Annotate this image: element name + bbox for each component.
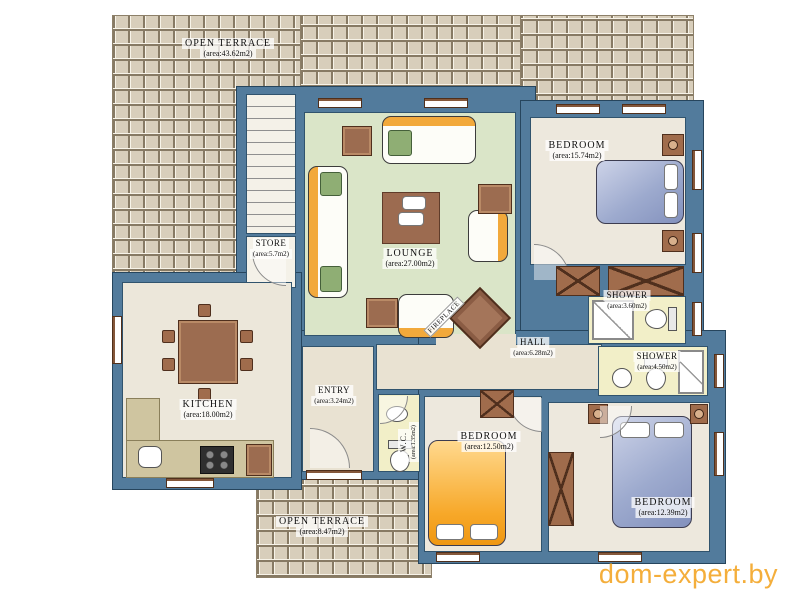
room-name: STORE bbox=[253, 238, 290, 249]
room-name: SHOWER bbox=[634, 351, 681, 362]
room-area: (area:3.60m2) bbox=[604, 301, 649, 311]
window-icon bbox=[556, 104, 600, 114]
room-area: (area:8.47m2) bbox=[296, 527, 347, 537]
nightstand bbox=[662, 134, 684, 156]
room-name: HALL bbox=[517, 337, 549, 348]
side-table bbox=[478, 184, 512, 214]
dining-table bbox=[178, 320, 238, 384]
cushion bbox=[388, 130, 412, 156]
window-icon bbox=[318, 98, 362, 108]
room-label-bedroom-right: BEDROOM (area:12.39m2) bbox=[631, 497, 694, 518]
room-area: (area:4.50m2) bbox=[634, 362, 679, 372]
watermark: dom-expert.by bbox=[599, 559, 778, 590]
side-table bbox=[366, 298, 398, 328]
chair bbox=[198, 304, 211, 317]
room-label-store: STORE (area:5.7m2) bbox=[250, 238, 292, 259]
room-label-shower-right: SHOWER (area:4.50m2) bbox=[634, 351, 681, 372]
room-name: BEDROOM bbox=[545, 140, 608, 151]
room-name: KITCHEN bbox=[180, 399, 237, 410]
window-icon bbox=[714, 354, 724, 388]
bed-pillow bbox=[436, 524, 464, 540]
room-area: (area:18.00m2) bbox=[180, 410, 235, 420]
chair bbox=[162, 330, 175, 343]
nightstand bbox=[690, 404, 708, 424]
entry-door bbox=[306, 470, 362, 480]
room-label-kitchen: KITCHEN (area:18.00m2) bbox=[180, 399, 237, 420]
window-icon bbox=[436, 552, 480, 562]
open-terrace-top-right bbox=[520, 15, 694, 112]
cushion bbox=[320, 172, 342, 196]
chair bbox=[240, 358, 253, 371]
room-area: (area:6.28m2) bbox=[510, 348, 555, 358]
window-icon bbox=[424, 98, 468, 108]
room-label-lounge: LOUNGE (area:27.00m2) bbox=[382, 248, 437, 269]
room-name: LOUNGE bbox=[383, 248, 436, 259]
room-area: (area:1.35m2) bbox=[409, 422, 419, 462]
room-name: OPEN TERRACE bbox=[182, 38, 274, 49]
room-label-entry: ENTRY (area:3.24m2) bbox=[311, 385, 356, 406]
chair bbox=[162, 358, 175, 371]
window-icon bbox=[692, 233, 702, 273]
room-label-bedroom-mid: BEDROOM (area:12.50m2) bbox=[457, 431, 520, 452]
room-area: (area:5.7m2) bbox=[250, 249, 292, 259]
room-area: (area:3.24m2) bbox=[311, 396, 356, 406]
nightstand bbox=[662, 230, 684, 252]
cushion bbox=[320, 266, 342, 292]
staircase bbox=[246, 94, 296, 234]
room-label-bedroom-top: BEDROOM (area:15.74m2) bbox=[545, 140, 608, 161]
window-icon bbox=[692, 302, 702, 336]
window-icon bbox=[692, 150, 702, 190]
kitchen-sink-icon bbox=[138, 446, 162, 468]
room-area: (area:15.74m2) bbox=[549, 151, 604, 161]
side-table bbox=[342, 126, 372, 156]
room-area: (area:12.50m2) bbox=[461, 442, 516, 452]
room-name: W.C. bbox=[398, 429, 409, 455]
room-name: BEDROOM bbox=[457, 431, 520, 442]
window-icon bbox=[166, 478, 214, 488]
toilet-tank bbox=[668, 307, 677, 331]
kitchen-cabinet bbox=[246, 444, 272, 476]
room-area: (area:12.39m2) bbox=[635, 508, 690, 518]
room-name: BEDROOM bbox=[631, 497, 694, 508]
rug-pillow bbox=[398, 212, 424, 226]
toilet-bowl bbox=[645, 309, 667, 329]
bed-pillow bbox=[654, 422, 684, 438]
room-name: ENTRY bbox=[315, 385, 353, 396]
window-icon bbox=[112, 316, 122, 364]
room-area: (area:27.00m2) bbox=[382, 259, 437, 269]
hall-floor bbox=[376, 344, 602, 390]
wardrobe bbox=[548, 452, 574, 526]
armchair-right bbox=[468, 210, 508, 262]
closet bbox=[480, 390, 514, 418]
window-icon bbox=[714, 432, 724, 476]
bed-pillow bbox=[470, 524, 498, 540]
room-name: SHOWER bbox=[604, 290, 651, 301]
room-label-open-terrace-top: OPEN TERRACE (area:43.62m2) bbox=[182, 38, 274, 59]
room-label-hall: HALL (area:6.28m2) bbox=[510, 337, 555, 358]
bed-pillow bbox=[664, 192, 678, 218]
room-name: OPEN TERRACE bbox=[276, 516, 368, 527]
room-label-open-terrace-bottom: OPEN TERRACE (area:8.47m2) bbox=[276, 516, 368, 537]
room-area: (area:43.62m2) bbox=[200, 49, 255, 59]
bed-pillow bbox=[664, 164, 678, 190]
floor-plan: OPEN TERRACE (area:43.62m2) STORE (area:… bbox=[0, 0, 800, 600]
room-label-shower-top: SHOWER (area:3.60m2) bbox=[604, 290, 651, 311]
chair bbox=[240, 330, 253, 343]
closet bbox=[556, 266, 600, 296]
stove-icon bbox=[200, 446, 234, 474]
room-label-wc: W.C. (area:1.35m2) bbox=[398, 422, 419, 462]
rug-pillow bbox=[402, 196, 426, 210]
shower-tray-icon bbox=[678, 350, 704, 394]
window-icon bbox=[622, 104, 666, 114]
sink-icon bbox=[612, 368, 632, 388]
